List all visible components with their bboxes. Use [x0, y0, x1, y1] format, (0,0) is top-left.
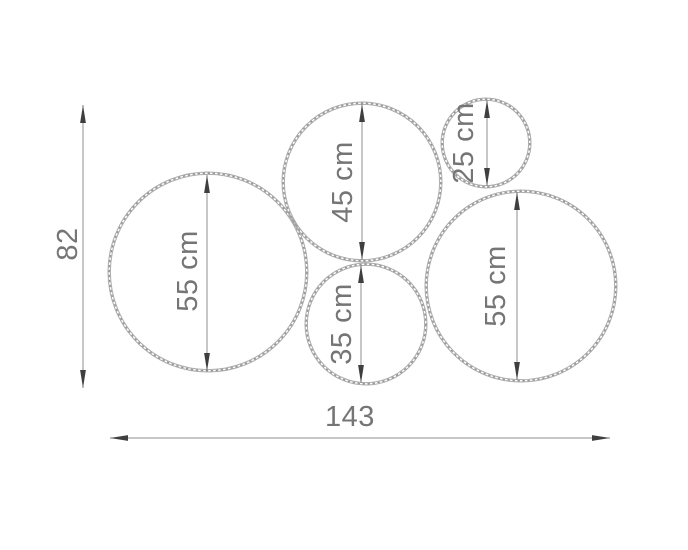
dimension-diagram-svg: 55 cm 45 cm 25 cm 35 cm 55 cm 82 143: [0, 0, 688, 550]
ring-inner: [427, 192, 614, 379]
ring-inner: [110, 174, 305, 369]
ring-hatch: [306, 264, 426, 384]
label-right-large-diameter: 55 cm: [480, 245, 512, 326]
label-overall-height: 82: [52, 227, 84, 260]
circle-right-large: [425, 190, 617, 382]
circle-left-large: [108, 172, 308, 372]
ring-inner: [307, 265, 424, 382]
label-overall-width: 143: [325, 401, 375, 433]
label-top-middle-diameter: 45 cm: [327, 141, 359, 222]
dimension-diagram: 55 cm 45 cm 25 cm 35 cm 55 cm 82 143: [0, 0, 688, 550]
circle-bottom-middle: [305, 263, 427, 385]
label-bottom-middle-diameter: 35 cm: [326, 283, 358, 364]
label-top-right-small-diameter: 25 cm: [448, 102, 480, 183]
dimension-labels: 55 cm 45 cm 25 cm 35 cm 55 cm 82 143: [52, 102, 512, 433]
label-left-large-diameter: 55 cm: [172, 230, 204, 311]
